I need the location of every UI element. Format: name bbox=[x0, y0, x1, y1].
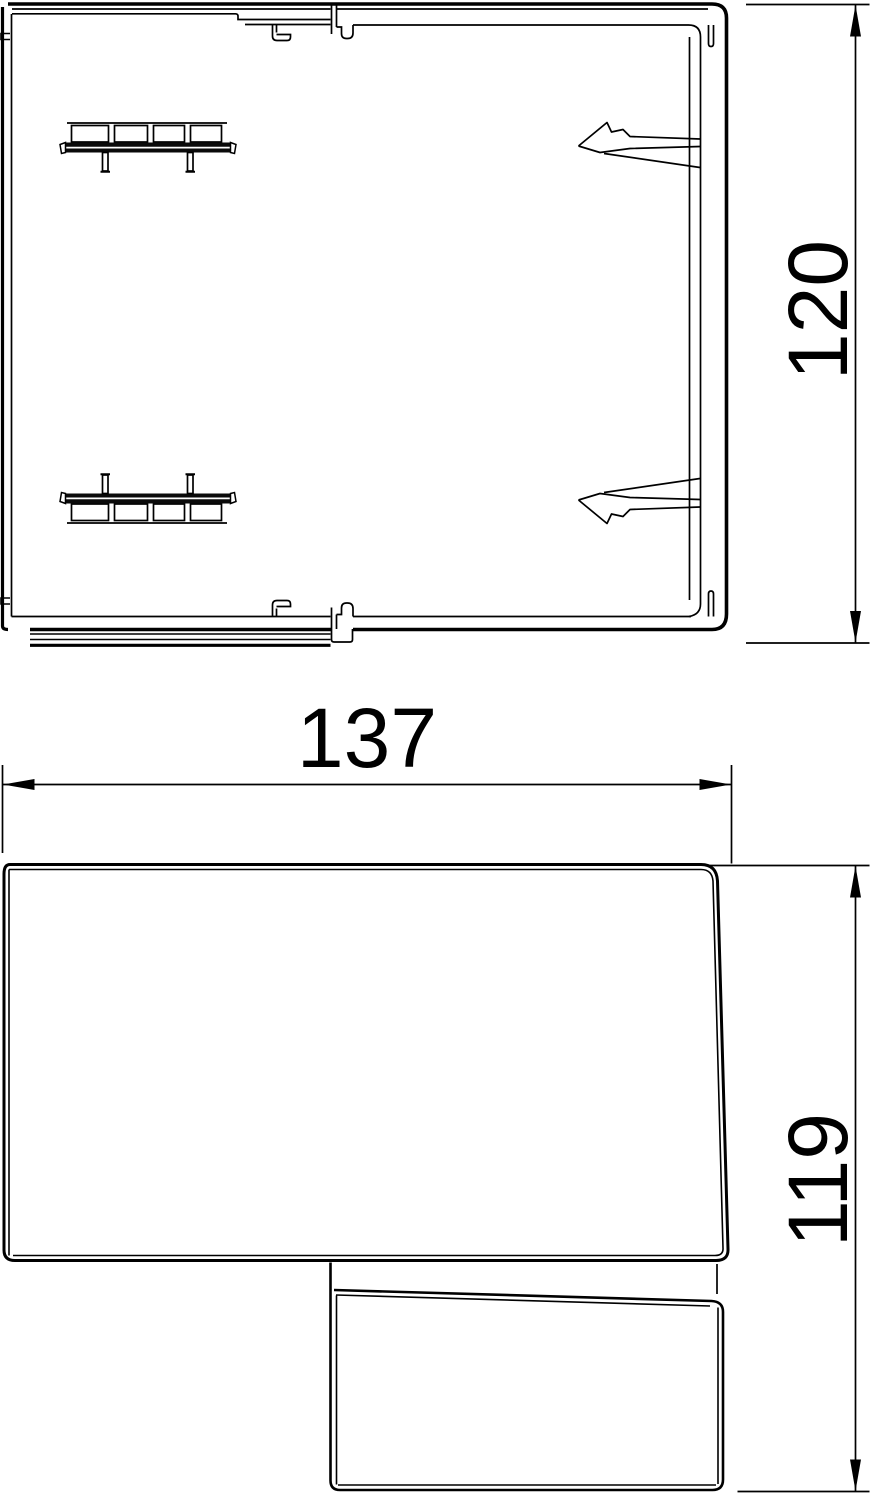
dim119-arrow-down bbox=[850, 1460, 861, 1492]
top-right-stub bbox=[709, 25, 714, 47]
rail-segment bbox=[72, 126, 109, 143]
profile-section-view bbox=[1, 4, 727, 645]
latch-clip-top bbox=[579, 123, 701, 168]
dimension-120: 120 bbox=[746, 5, 870, 644]
technical-drawing: 120 137 119 bbox=[0, 0, 872, 1500]
dim120-arrow-up bbox=[850, 5, 861, 37]
mirrored-rail-and-clip bbox=[60, 474, 700, 523]
rail-segment bbox=[191, 126, 222, 143]
rail-segment bbox=[115, 126, 148, 143]
profile-left-outer-wall bbox=[3, 7, 9, 630]
rail-leg bbox=[188, 153, 194, 172]
dim120-arrow-down bbox=[850, 611, 861, 643]
top-wall-inner-line-right bbox=[353, 25, 701, 617]
body-inner-line bbox=[9, 870, 723, 1256]
rail-end-cap-right bbox=[231, 143, 237, 154]
drawing-canvas: 120 137 119 bbox=[0, 0, 872, 1500]
rail-leg bbox=[103, 153, 109, 172]
body-outer-contour bbox=[4, 865, 728, 1261]
dim137-label: 137 bbox=[297, 691, 437, 785]
dim137-arrow-left bbox=[3, 779, 35, 790]
top-wall-line-3 bbox=[12, 14, 331, 20]
top-seam-joint bbox=[332, 4, 337, 34]
dimension-137: 137 bbox=[3, 691, 732, 864]
bottom-right-stub bbox=[709, 591, 714, 617]
bottom-seam-joint bbox=[332, 608, 337, 630]
top-seam-boot bbox=[337, 25, 354, 39]
bottom-coupling-tab bbox=[332, 629, 353, 642]
bottom-seam-boot bbox=[337, 603, 354, 617]
rail-segment bbox=[154, 126, 185, 143]
profile-outer-contour bbox=[8, 4, 727, 630]
rail-end-cap-left bbox=[60, 143, 66, 154]
dimension-119: 119 bbox=[709, 866, 870, 1492]
device-rail-top bbox=[60, 123, 236, 172]
clip-head-top bbox=[579, 123, 701, 147]
dim119-label: 119 bbox=[771, 1113, 865, 1247]
side-view bbox=[4, 865, 728, 1491]
top-hook bbox=[273, 25, 291, 41]
clip-spring-leg bbox=[604, 154, 700, 168]
dim119-arrow-up bbox=[850, 866, 861, 898]
dim120-label: 120 bbox=[771, 240, 865, 380]
dim137-arrow-right bbox=[700, 779, 732, 790]
clip-bar-bottom bbox=[579, 146, 701, 153]
bottom-hook bbox=[273, 601, 291, 617]
